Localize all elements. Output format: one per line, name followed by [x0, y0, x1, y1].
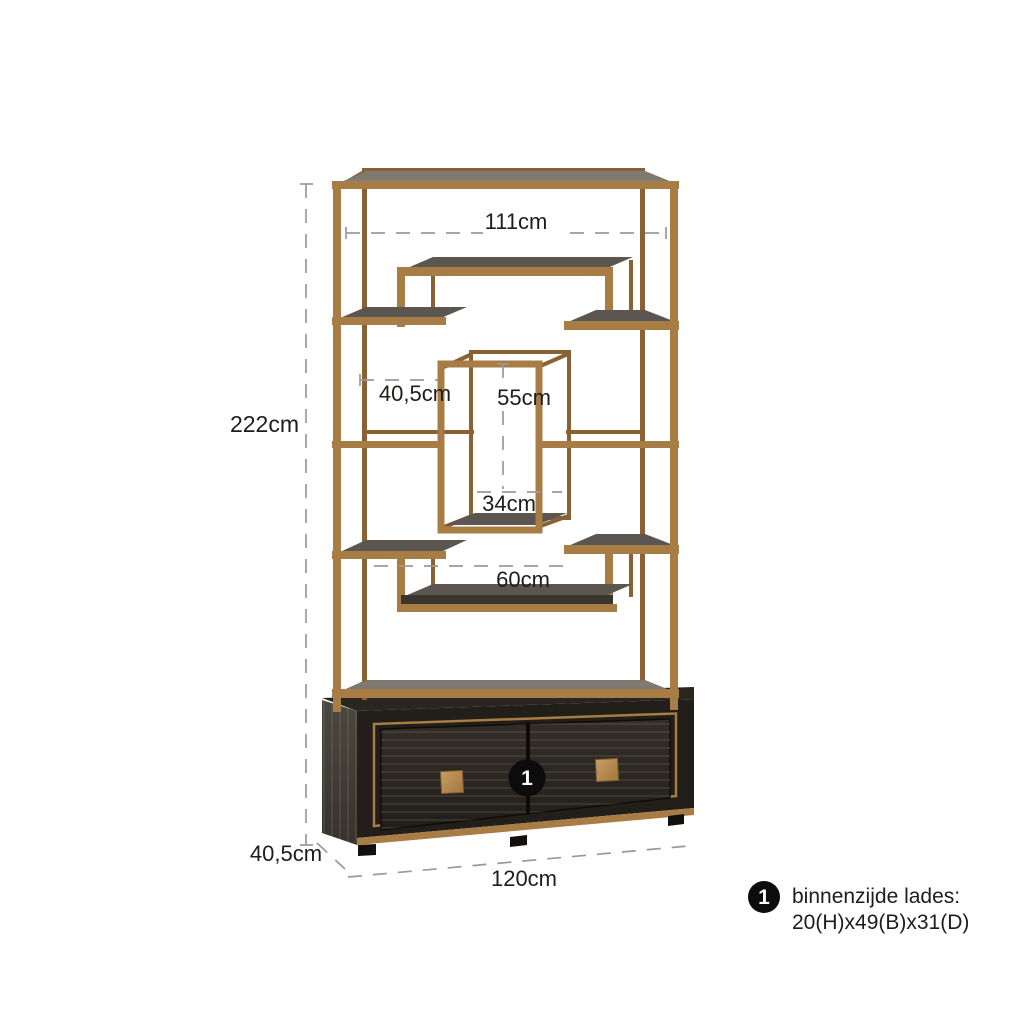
back-left-post: [362, 170, 367, 700]
base-foot-middle: [510, 835, 527, 847]
front-left-post: [333, 182, 341, 712]
legend-title: binnenzijde lades:: [792, 885, 960, 908]
drawer-knob-left: [440, 770, 463, 793]
label-lower-shelf-width: 60cm: [496, 567, 550, 592]
label-total-height: 222cm: [230, 411, 299, 437]
bottom-shelf: [332, 680, 679, 698]
marker-1-badge: 1: [509, 760, 546, 797]
base-foot-right: [668, 814, 684, 826]
drawer-base-cabinet: [322, 687, 694, 856]
label-box-height: 55cm: [497, 385, 551, 410]
label-base-depth: 40,5cm: [250, 841, 322, 866]
upper-bridge-shelf: [332, 257, 679, 330]
front-right-post: [670, 182, 678, 710]
legend-marker-number: 1: [758, 886, 770, 909]
label-base-width: 120cm: [491, 866, 557, 891]
legend: 1 binnenzijde lades: 20(H)x49(B)x31(D): [748, 881, 969, 934]
diagram-canvas: 1 111cm 222cm 40,5cm 55cm 34cm 60cm 120c…: [0, 0, 1024, 1024]
base-side-panel-grain: [322, 700, 357, 845]
back-mid-rail-right: [566, 430, 643, 434]
label-box-width: 34cm: [482, 491, 536, 516]
drawer-knob-right: [595, 758, 618, 781]
marker-1-number: 1: [521, 767, 533, 790]
base-foot-left: [358, 844, 376, 856]
etagere-frame: [332, 168, 679, 712]
legend-value: 20(H)x49(B)x31(D): [792, 911, 969, 934]
back-mid-rail-left: [362, 430, 474, 434]
label-shelf-depth: 40,5cm: [379, 381, 451, 406]
product-dimension-diagram: 1 111cm 222cm 40,5cm 55cm 34cm 60cm 120c…: [0, 0, 1024, 1024]
mid-rail-left: [332, 441, 441, 448]
mid-rail-right: [539, 441, 679, 448]
label-top-width: 111cm: [485, 209, 548, 234]
top-shelf: [332, 171, 679, 189]
